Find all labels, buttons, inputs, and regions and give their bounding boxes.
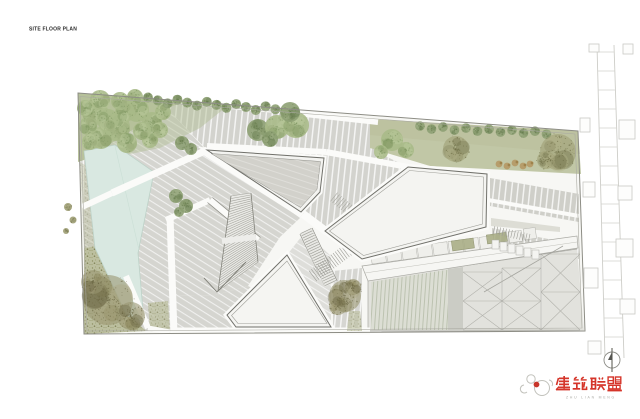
svg-text:ZHU LIAN MENG: ZHU LIAN MENG: [566, 396, 616, 400]
svg-text:SITE FLOOR PLAN: SITE FLOOR PLAN: [29, 27, 77, 33]
